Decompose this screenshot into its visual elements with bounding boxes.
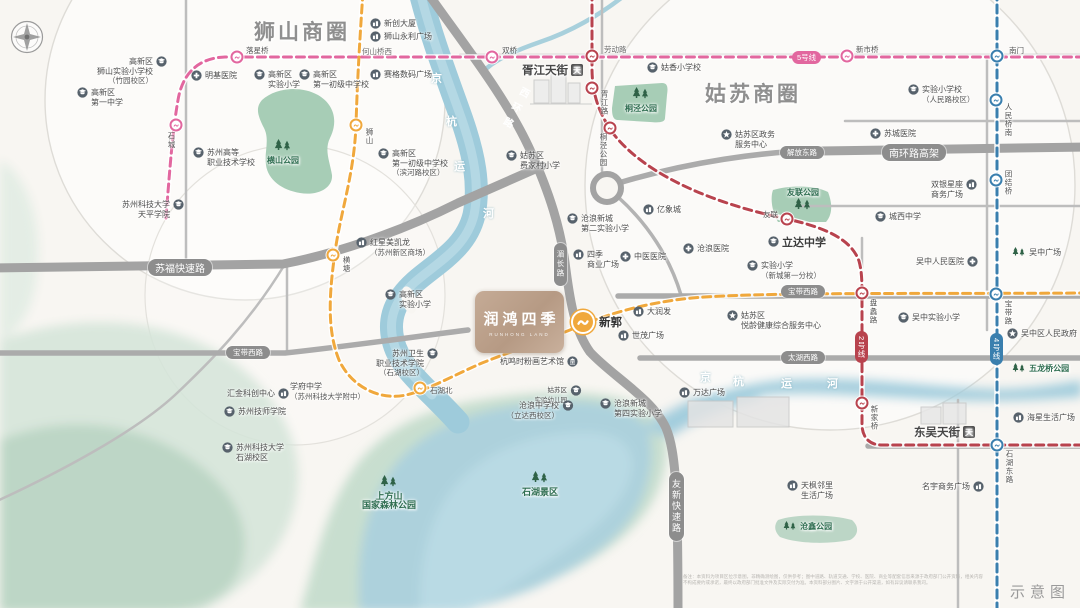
station-shihubei-label: 石湖北 (430, 385, 453, 396)
mall-xujiang-tianjie: 胥江天街天 (522, 62, 583, 78)
station-xinshiqiao-label: 新市桥 (856, 44, 879, 55)
poi-wuzhong-exp-primary: 吴中实验小学 (898, 313, 960, 326)
poi-canglang-no4-exp-primary: 沧浪新城第四实验小学 (600, 399, 662, 418)
poi-canglang-middle-lida-west: 沧浪中学校（立达西校区） (507, 401, 574, 420)
school-icon (600, 398, 611, 412)
badge-line-4: 4号线 (990, 333, 1003, 365)
poi-exp-primary-xincheng-no1: 实验小学（新城第一分校） (747, 261, 821, 280)
station-shihubei (414, 382, 427, 395)
property-name: 润鸿四季 (479, 308, 559, 329)
poi-gaoxin-shishan-exp-primary: 高新区狮山实验小学校（竹园校区） (97, 57, 167, 86)
school-icon (562, 400, 573, 414)
poi-yueling-health-center: 姑苏区悦龄健康综合服务中心 (727, 311, 821, 330)
gov-icon (721, 129, 732, 143)
poi-redstar-macalline: 红星美凯龙（苏州新区商场） (356, 238, 430, 257)
poi-exp-primary-renminlu: 实验小学校（人民路校区） (908, 85, 975, 104)
station-luoxingqiao (231, 51, 244, 64)
poi-shuangyin-xingzuo-plaza: 双银星座商务广场 (931, 180, 977, 199)
mall-icon (679, 387, 690, 401)
station-tuanjieqiao-label: 团结桥 (1003, 170, 1014, 196)
station-renminqiao-south (990, 94, 1003, 107)
station-tongjing-park-label: 桐泾公园 (598, 133, 609, 167)
poi-rt-mart: 大润发 (633, 307, 671, 320)
poi-tongjing-park-label: 桐泾公园 (625, 88, 657, 113)
poi-gaoxin-no1-junior-north: 高新区第一初级中学校 (299, 70, 369, 89)
school-icon (385, 289, 396, 303)
tianjie-badge-icon: 天 (571, 64, 583, 76)
road-baodai-west-e: 宝带西路 (781, 285, 825, 298)
school-icon (299, 69, 310, 83)
station-nanmen-label: 南门 (1009, 45, 1024, 56)
trees-icon (274, 139, 292, 155)
station-tuanjieqiao (990, 174, 1003, 187)
poi-wuzhong-plaza: 吴中广场 (1012, 248, 1061, 260)
station-xujianglu-label: 胥江路 (599, 90, 610, 116)
trees-icon (632, 87, 650, 103)
poi-huijin-tech-center: 汇金科创中心 (227, 389, 289, 402)
station-shishan (350, 119, 363, 132)
station-shuangqiao (486, 51, 499, 64)
poi-weisheng-vocational-college: 苏州卫生职业技术学院（石湖校区） (376, 349, 438, 378)
road-nanhuan-viaduct: 南环路高架 (882, 144, 946, 161)
road-sufu-expressway: 苏福快速路 (148, 259, 212, 276)
gov-icon (1007, 328, 1018, 342)
mall-icon (573, 249, 584, 263)
poi-haixing-life-plaza: 海星生活广场 (1013, 413, 1075, 426)
shishan-business-circle-title: 狮山商圈 (254, 16, 350, 46)
school-icon (898, 312, 909, 326)
mall-icon (356, 237, 367, 251)
school-icon (77, 87, 88, 101)
location-schematic-map: 新创大厦狮山永利广场赛格数码广场明基医院高新区狮山实验小学校（竹园校区）高新区第… (0, 0, 1080, 608)
poi-keda-shihu-campus: 苏州科技大学石湖校区 (222, 443, 284, 462)
hosp-icon (191, 70, 202, 84)
station-shuangqiao-label: 双桥 (502, 45, 517, 56)
poi-wuzhong-district-gov: 吴中区人民政府 (1007, 329, 1077, 342)
road-jiefang-east: 解放东路 (780, 146, 824, 159)
mall-icon (973, 481, 984, 495)
mall-icon (966, 179, 977, 193)
poi-tianfeng-linli-plaza: 天枫邻里生活广场 (787, 481, 833, 500)
school-icon (156, 56, 167, 70)
station-nanmen (991, 50, 1004, 63)
school-icon (747, 260, 758, 274)
mall-icon (370, 69, 381, 83)
gusu-business-circle-title: 姑苏商圈 (705, 78, 801, 108)
poi-wuzhong-renmin-hospital: 吴中人民医院 (916, 257, 978, 270)
poi-suzhou-higher-vocational: 苏州高等职业技术学校 (193, 148, 255, 167)
station-xujianglu (586, 82, 599, 95)
trees-icon (380, 475, 398, 491)
station-shishan-label: 狮山 (364, 128, 375, 145)
schematic-note: 示意图 (1010, 581, 1070, 602)
museum-icon (567, 356, 578, 370)
property-name-en: RUNHONG LAND (489, 332, 550, 337)
river-label-char: 运 (781, 375, 792, 391)
school-icon (567, 213, 578, 227)
school-icon (254, 69, 265, 83)
school-icon (506, 150, 517, 164)
disclaimer-text: 备注：本资料为项目区位示意图，非精确测绘图，仅供参考；图中道路、轨道交通、学校、… (683, 574, 983, 585)
mall-icon (370, 18, 381, 32)
station-xinshiqiao (841, 50, 854, 63)
mall-icon (633, 306, 644, 320)
badge-line-2: 2号线 (855, 331, 868, 363)
poi-siji-commercial-plaza: 四季商业广场 (573, 250, 619, 269)
mall-icon (643, 204, 654, 218)
poi-chengxi-middle-school: 城西中学 (875, 212, 921, 225)
poi-gaoxin-no1-junior-binhe: 高新区第一初级中学校（滨河路校区） (378, 149, 448, 178)
station-shicheng-label: 石城 (166, 132, 177, 149)
mall-dongwu-tianjie: 东吴天街天 (914, 424, 975, 440)
trees-icon (531, 471, 549, 487)
station-renminqiao-south-label: 人民桥南 (1003, 103, 1014, 137)
school-icon (875, 211, 886, 225)
station-xinjiaqiao-label: 新家桥 (869, 405, 880, 431)
station-xinjiaqiao (856, 397, 869, 410)
poi-hangmingshi-art-museum: 杭鸣时粉画艺术馆 (500, 357, 578, 370)
poi-yixiangcheng-mall: 亿象城 (643, 205, 681, 218)
poi-canglang-hospital: 沧浪医院 (683, 244, 729, 257)
gov-icon (727, 310, 738, 324)
road-youxin-expressway: 友新快速路 (669, 472, 684, 541)
poi-wanda-plaza: 万达广场 (679, 388, 725, 401)
poi-cangxin-park-label: 沧鑫公园 (783, 522, 832, 534)
mall-icon (1013, 412, 1024, 426)
poi-mingyu-business-plaza: 名宇商务广场 (922, 482, 984, 495)
station-laodonglu (586, 50, 599, 63)
station-xinguo (573, 312, 593, 332)
river-label-char: 京 (700, 369, 711, 385)
station-baodailu (990, 288, 1003, 301)
station-youlian (781, 213, 794, 226)
station-panlilu (856, 287, 869, 300)
road-taihu-west: 太湖西路 (781, 351, 825, 364)
school-icon (908, 84, 919, 98)
mall-icon (370, 31, 381, 45)
poi-canglang-no2-exp-primary: 沧浪新城第二实验小学 (567, 214, 629, 233)
road-meichang: 湄长路 (554, 243, 567, 286)
river-label-char: 河 (827, 375, 838, 391)
school-icon (378, 148, 389, 162)
school-icon (193, 147, 204, 161)
school-icon (427, 348, 438, 362)
hosp-icon (967, 256, 978, 270)
poi-shimao-plaza: 世茂广场 (618, 331, 664, 344)
hosp-icon (870, 128, 881, 142)
poi-guxiang-primary: 姑香小学校 (647, 63, 701, 76)
poi-gaoxin-exp-primary-center: 高新区实验小学 (385, 290, 431, 309)
poi-suzhou-jishi-college: 苏州技师学院 (224, 407, 286, 420)
poi-gaoxin-exp-primary-north: 高新区实验小学 (254, 70, 300, 89)
poi-shihu-scenic-label: 石湖景区 (522, 472, 558, 497)
hosp-icon (620, 251, 631, 265)
poi-lida-middle-school: 立达中学 (768, 237, 826, 250)
poi-sucheng-hospital: 苏城医院 (870, 129, 916, 142)
station-luoxingqiao-label: 落星桥 (246, 45, 269, 56)
tianjie-badge-icon: 天 (963, 426, 975, 438)
station-shihu-east-rd (991, 439, 1004, 452)
trees-icon (794, 198, 812, 214)
station-xinguo-label: 新郭 (599, 314, 622, 330)
station-baodailu-label: 宝带路 (1003, 300, 1014, 326)
poi-mingji-hospital: 明基医院 (191, 71, 237, 84)
property-logo: 润鸿四季 RUNHONG LAND (475, 291, 564, 353)
trees-icon (1012, 363, 1026, 376)
poi-saige-digital-plaza: 赛格数码广场 (370, 70, 432, 83)
school-icon (647, 62, 658, 76)
poi-feijiacun-primary: 姑苏区费家村小学 (506, 151, 560, 170)
school-icon (173, 199, 184, 213)
mall-icon (787, 480, 798, 494)
mall-icon (278, 388, 289, 402)
poi-gusu-gov-service-center: 姑苏区政务服务中心 (721, 130, 775, 149)
badge-line-5: 5号线 (792, 51, 821, 64)
station-panlilu-label: 盘蠡路 (868, 299, 879, 325)
school-icon (224, 406, 235, 420)
station-shicheng (170, 119, 183, 132)
poi-xuefu-middle-school: 学府中学（苏州科技大学附中） (290, 382, 365, 401)
school-icon (768, 236, 779, 250)
river-label-char: 杭 (446, 113, 457, 129)
river-label-char: 京 (431, 70, 442, 86)
river-label-char: 河 (483, 205, 494, 221)
poi-youlian-park-label: 友联公园 (787, 188, 819, 213)
road-baodai-west-w: 宝带西路 (226, 346, 270, 359)
station-hengtang-label: 横塘 (341, 256, 352, 273)
poi-gaoxin-no1-middle: 高新区第一中学 (77, 88, 123, 107)
road-laodong: 劳动路 (604, 44, 627, 55)
station-shihu-east-rd-label: 石湖东路 (1004, 450, 1015, 484)
mall-icon (618, 330, 629, 344)
trees-icon (783, 521, 797, 534)
poi-shishan-yongli-plaza: 狮山永利广场 (370, 32, 432, 45)
poi-shangfangshan-forest-park-label: 上方山国家森林公园 (362, 476, 416, 511)
trees-icon (1012, 247, 1026, 260)
road-xihuan: 西环路 (495, 83, 532, 135)
hosp-icon (683, 243, 694, 257)
poi-keda-tianping-college: 苏州科技大学天平学院 (122, 200, 184, 219)
poi-zhongyi-hospital: 中医医院 (620, 252, 666, 265)
poi-xinchuang-tower: 新创大厦 (370, 19, 416, 32)
label-heshanqiao-west: 何山桥西 (362, 46, 392, 57)
poi-wulongqiao-park-label: 五龙桥公园 (1012, 364, 1069, 376)
school-icon (222, 442, 233, 456)
station-youlian-label: 友联 (763, 209, 778, 220)
station-hengtang (327, 249, 340, 262)
poi-hengshan-park-label: 横山公园 (267, 140, 299, 165)
school-icon (570, 385, 581, 400)
river-label-char: 杭 (733, 373, 744, 389)
river-label-char: 运 (454, 158, 465, 174)
